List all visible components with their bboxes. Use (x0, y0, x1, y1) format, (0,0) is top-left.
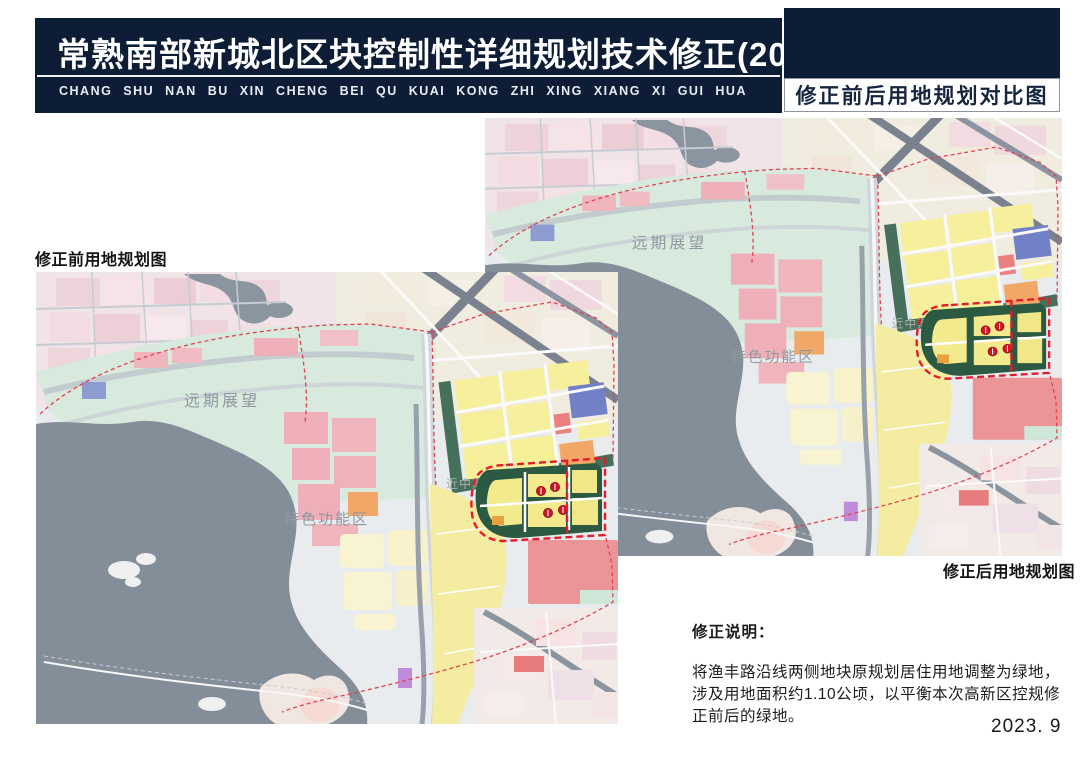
header-divider (37, 75, 780, 77)
header-band: 常熟南部新城北区块控制性详细规划技术修正(2023年) CHANG SHU NA… (35, 18, 782, 113)
correction-note-heading: 修正说明： (692, 620, 1070, 642)
map-before (36, 272, 618, 724)
caption-before-map: 修正前用地规划图 (35, 246, 167, 270)
corner-tag-label: 修正前后用地规划对比图 (796, 80, 1049, 110)
correction-note: 修正说明： 将渔丰路沿线两侧地块原规划居住用地调整为绿地，涉及用地面积约1.10… (692, 620, 1070, 728)
page: 远期展望 (0, 0, 1080, 762)
header-band-right (784, 8, 1060, 78)
page-title: 常熟南部新城北区块控制性详细规划技术修正(2023年) (57, 28, 872, 76)
caption-after-map: 修正后用地规划图 (943, 558, 1075, 582)
date-stamp: 2023. 9 (991, 716, 1061, 738)
corner-tag: 修正前后用地规划对比图 (784, 78, 1060, 112)
map-before-svg (36, 272, 618, 724)
page-subtitle: CHANG SHU NAN BU XIN CHENG BEI QU KUAI K… (59, 84, 747, 98)
